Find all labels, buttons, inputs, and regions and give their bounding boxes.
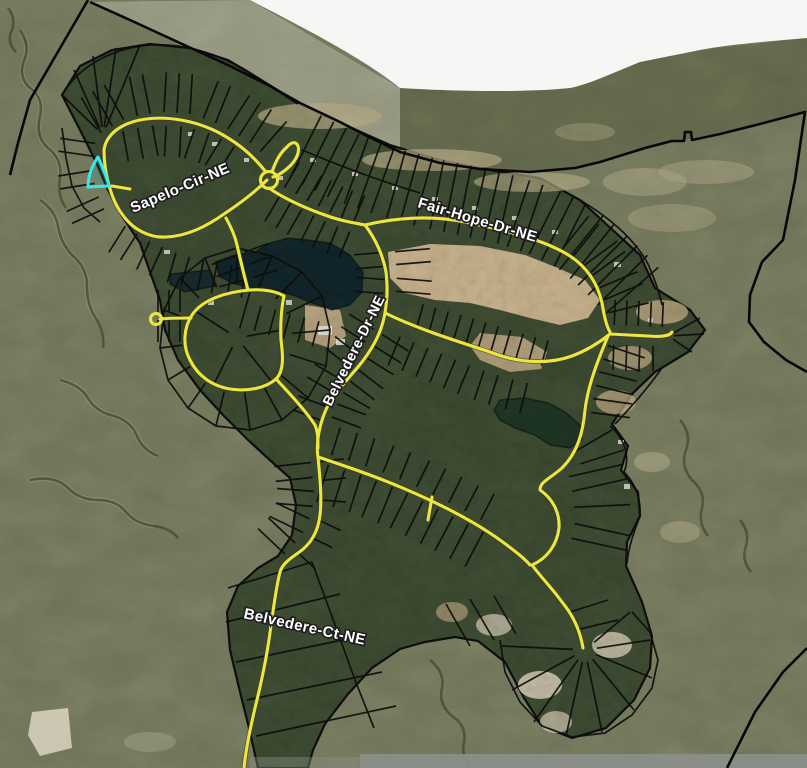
bottom-road-band (360, 754, 807, 768)
map-viewport[interactable]: Sapelo-Cir-NE Fair-Hope-Dr-NE Belvedere-… (0, 0, 807, 768)
road-wheel-spur (160, 318, 191, 319)
bottom-road-band-fade (250, 757, 360, 768)
